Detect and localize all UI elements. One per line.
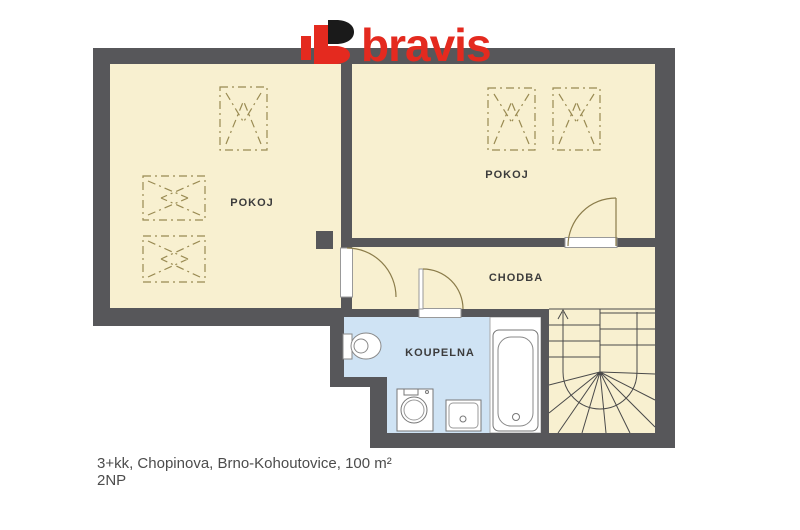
floor-pokoj-right [352,64,655,238]
chimney-block [316,231,333,249]
wall-chodba-koupelna-left [352,309,419,317]
floor-pokoj-left [110,64,341,308]
wall-lower-left [370,387,387,433]
bravis-logo: bravis [299,14,519,68]
caption: 3+kk, Chopinova, Brno-Kohoutovice, 100 m… [97,455,392,489]
wall-koupelna-step [330,377,387,387]
wall-chodba-koupelna-right [461,309,549,317]
washing-machine-icon [397,389,433,431]
room-label-pokoj-left: POKOJ [230,197,274,209]
bravis-logo-icon [301,18,355,64]
room-label-pokoj-right: POKOJ [485,169,529,181]
room-label-chodba: CHODBA [489,272,543,284]
room-label-koupelna: KOUPELNA [405,347,475,359]
wall-koupelna-left [330,308,344,387]
bathtub-icon [493,330,538,431]
wall-pokoj-chodba-right [617,238,655,247]
wall-bottom-left-room [93,308,341,326]
wall-right [655,48,675,448]
bravis-logo-text: bravis [361,22,491,68]
floor-staircase [549,309,655,433]
floorplan-drawing [0,0,800,530]
door-leaf-koupelna [419,269,423,309]
caption-line1: 3+kk, Chopinova, Brno-Kohoutovice, 100 m… [97,455,392,472]
toilet-icon [343,333,381,359]
wall-left [93,48,110,326]
floorplan-page: POKOJ POKOJ CHODBA KOUPELNA bravis 3+kk,… [0,0,800,530]
wall-bottom [370,433,675,448]
wall-interior-vertical-upper [341,64,352,248]
door-opening-pokoj-left [341,248,353,297]
door-opening-koupelna [419,309,461,318]
wall-pokoj-chodba-left [352,238,565,247]
caption-line2: 2NP [97,472,392,489]
door-opening-pokoj-right [565,238,617,248]
wall-koupelna-stairs [541,317,549,433]
sink-icon [446,400,481,431]
